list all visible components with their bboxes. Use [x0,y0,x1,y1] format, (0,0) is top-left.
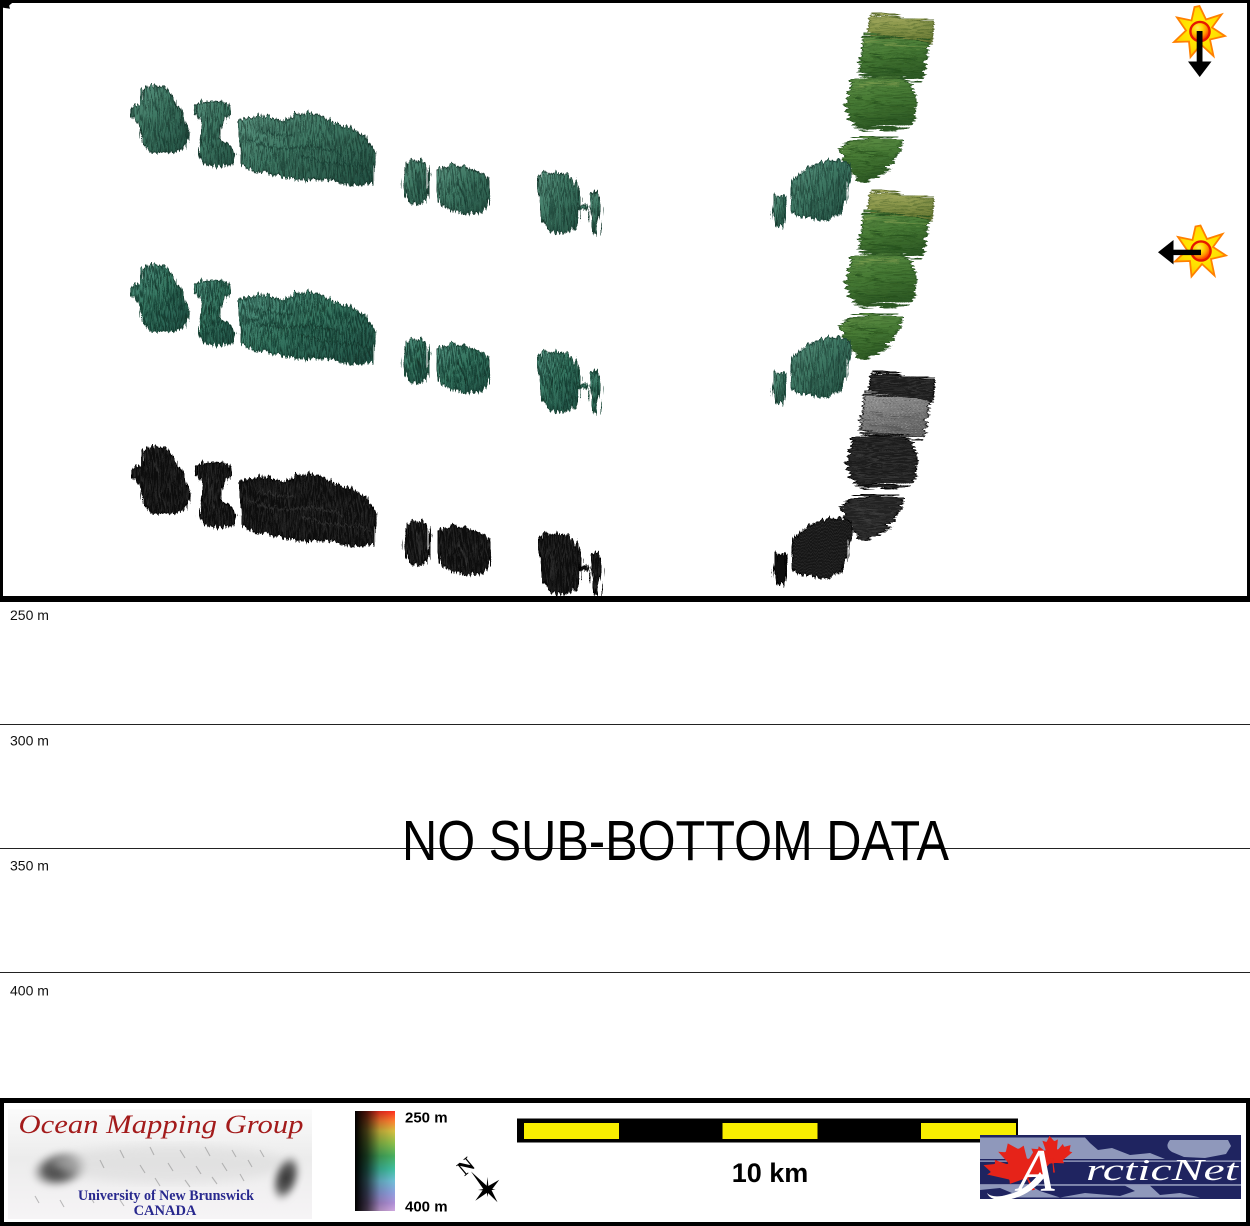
svg-text:A: A [1014,1138,1055,1204]
svg-text:10 km: 10 km [732,1158,809,1188]
svg-text:University of New Brunswick: University of New Brunswick [78,1188,255,1204]
svg-text:300 m: 300 m [10,733,49,749]
svg-text:350 m: 350 m [10,858,49,874]
svg-text:250 m: 250 m [405,1110,448,1127]
svg-text:Ocean Mapping Group: Ocean Mapping Group [19,1110,304,1139]
svg-text:NO SUB-BOTTOM DATA: NO SUB-BOTTOM DATA [402,809,949,873]
svg-text:400 m: 400 m [10,983,49,999]
svg-text:400 m: 400 m [405,1199,448,1216]
svg-text:CANADA: CANADA [134,1203,197,1219]
svg-text:rcticNet: rcticNet [1086,1152,1240,1187]
svg-text:250 m: 250 m [10,607,49,623]
